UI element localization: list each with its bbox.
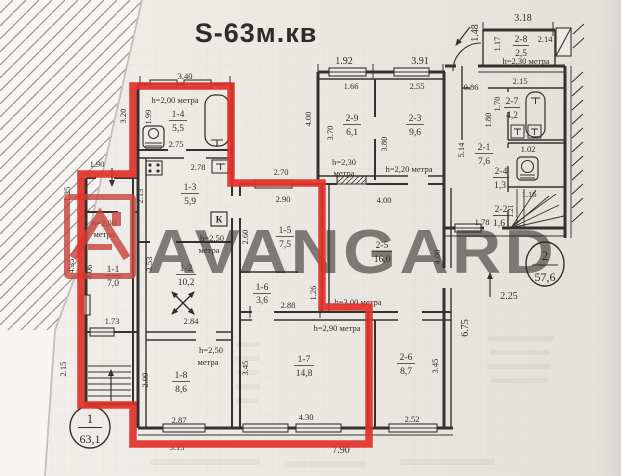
room-2-7-id: 2-7 bbox=[506, 97, 519, 107]
dim-3-20: 3.20 bbox=[118, 109, 128, 124]
dim-1-66: 1.66 bbox=[344, 81, 359, 91]
dim-1-16: 1.16 bbox=[522, 189, 537, 199]
dim-2-75: 2.75 bbox=[169, 139, 184, 149]
room-1-8-height-2: метра bbox=[198, 357, 219, 367]
room-2-1-id: 2-1 bbox=[478, 143, 491, 153]
room-1-3-area: 5,9 bbox=[184, 197, 196, 207]
dim-1-70: 1.70 bbox=[492, 97, 502, 112]
apartment-1-area: 63,1 bbox=[80, 432, 101, 446]
dim-3-45-right: 3.45 bbox=[430, 359, 440, 374]
dim-1-92: 1.92 bbox=[335, 56, 353, 67]
room-2-8-id: 2-8 bbox=[515, 35, 528, 45]
dim-4-00-out: 4.00 bbox=[303, 112, 313, 127]
room-1-8-area: 8,6 bbox=[175, 385, 187, 395]
room-2-9-height-2: метра bbox=[334, 168, 355, 178]
room-2-4-area: 1,3 bbox=[494, 181, 506, 191]
room-2-6-id: 2-6 bbox=[400, 353, 413, 363]
dim-2-52: 2.52 bbox=[405, 414, 420, 424]
dim-2-99: 2.99 bbox=[140, 373, 150, 388]
dim-1-99: 1.99 bbox=[143, 110, 153, 125]
dim-3-91: 3.91 bbox=[411, 56, 429, 67]
room-1-8-height-1: h=2,50 bbox=[199, 345, 223, 355]
room-1-4-area: 5,5 bbox=[172, 124, 184, 134]
room-1-4-id: 1-4 bbox=[172, 110, 185, 120]
room-1-7-area: 14,8 bbox=[296, 369, 313, 379]
dim-2-13: 2.13 bbox=[135, 189, 145, 204]
window-icon bbox=[296, 424, 341, 432]
window-icon bbox=[243, 424, 288, 432]
dim-0-86: 0.86 bbox=[464, 82, 479, 92]
dim-1-73: 1.73 bbox=[105, 316, 120, 326]
dim-5-14: 5.14 bbox=[456, 142, 466, 158]
room-2-6-area: 8,7 bbox=[400, 367, 412, 377]
dim-3-80: 3.80 bbox=[379, 137, 389, 152]
apartment-1-number: 1 bbox=[87, 411, 94, 426]
dim-1-48: 1.48 bbox=[470, 24, 481, 42]
dim-1-17: 1.17 bbox=[492, 37, 502, 52]
dim-1-80: 1.80 bbox=[483, 113, 493, 128]
room-1-6-area: 3,6 bbox=[256, 296, 268, 306]
watermark-text: AVANGARD bbox=[147, 218, 557, 287]
dim-2-25: 2.25 bbox=[500, 291, 518, 302]
dim-3-70: 3.70 bbox=[325, 126, 335, 141]
dim-6-75: 6.75 bbox=[460, 319, 471, 337]
window-icon bbox=[394, 68, 429, 76]
room-2-9-area: 6,1 bbox=[346, 128, 358, 138]
dim-2-15-left: 2.15 bbox=[58, 362, 68, 377]
room-1-7-height: h=2,90 метра bbox=[313, 323, 360, 333]
dim-3-18: 3.18 bbox=[514, 13, 532, 24]
room-1-8-id: 1-8 bbox=[175, 371, 188, 381]
window-icon bbox=[329, 68, 366, 76]
window-icon bbox=[389, 424, 437, 432]
room-1-3-id: 1-3 bbox=[184, 183, 197, 193]
room-2-9-height-1: h=2,30 bbox=[332, 157, 356, 167]
dim-4-00-top25: 4.00 bbox=[377, 195, 392, 205]
room-2-3-height: h=2,20 метра bbox=[385, 164, 432, 174]
window-icon bbox=[163, 424, 205, 432]
room-2-7-area: 4,2 bbox=[506, 111, 518, 121]
dim-1-90: 1.90 bbox=[90, 159, 105, 169]
dim-2-84: 2.84 bbox=[184, 316, 200, 326]
dim-2-70: 2.70 bbox=[274, 167, 289, 177]
dim-1-26: 1.26 bbox=[308, 286, 318, 301]
room-2-1-area: 7,6 bbox=[478, 157, 490, 167]
dim-2-55: 2.55 bbox=[410, 81, 425, 91]
page-title: S-63м.кв bbox=[195, 18, 318, 48]
dim-2-90: 2.90 bbox=[276, 194, 291, 204]
dim-1-21: 1.21 bbox=[506, 204, 515, 217]
room-1-1-area: 7,0 bbox=[107, 279, 119, 289]
dim-4-30: 4.30 bbox=[299, 412, 314, 422]
floor-plan-scan: h=2,00 метра 1-4 5,5 1-3 5,9 h=2,50 метр… bbox=[0, 0, 621, 476]
room-2-3-area: 9,6 bbox=[409, 128, 421, 138]
room-2-4-id: 2-4 bbox=[495, 167, 508, 177]
dim-3-45-left: 3.45 bbox=[240, 361, 250, 376]
room-1-4-height: h=2,00 метра bbox=[151, 95, 198, 105]
room-1-7-id: 1-7 bbox=[298, 355, 311, 365]
dim-1-02: 1.02 bbox=[521, 144, 536, 154]
dim-2-14: 2.14 bbox=[538, 34, 554, 44]
room-2-8-height: h=2,30 метра bbox=[502, 56, 549, 66]
room-2-9-id: 2-9 bbox=[346, 114, 359, 124]
room-2-3-id: 2-3 bbox=[409, 114, 422, 124]
paper-edge-shadow bbox=[594, 0, 621, 476]
window-icon bbox=[90, 328, 114, 336]
dim-3-40: 3.40 bbox=[178, 71, 193, 81]
dim-2-15-27: 2.15 bbox=[513, 76, 528, 86]
balcony-window-icon bbox=[556, 28, 571, 56]
dim-2-78: 2.78 bbox=[191, 162, 206, 172]
dim-2-87: 2.87 bbox=[172, 415, 187, 425]
dim-2-88: 2.88 bbox=[281, 300, 296, 310]
